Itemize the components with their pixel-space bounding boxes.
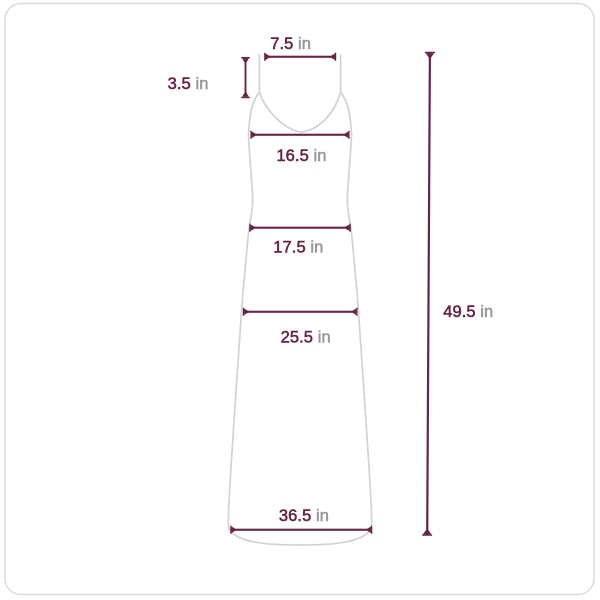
svg-text:3.5 in: 3.5 in — [168, 75, 209, 93]
svg-text:49.5 in: 49.5 in — [443, 303, 493, 321]
svg-text:16.5 in: 16.5 in — [276, 147, 326, 165]
svg-text:17.5 in: 17.5 in — [273, 238, 323, 256]
svg-text:25.5 in: 25.5 in — [281, 329, 331, 347]
svg-text:36.5 in: 36.5 in — [279, 507, 329, 525]
svg-text:7.5 in: 7.5 in — [270, 35, 311, 53]
